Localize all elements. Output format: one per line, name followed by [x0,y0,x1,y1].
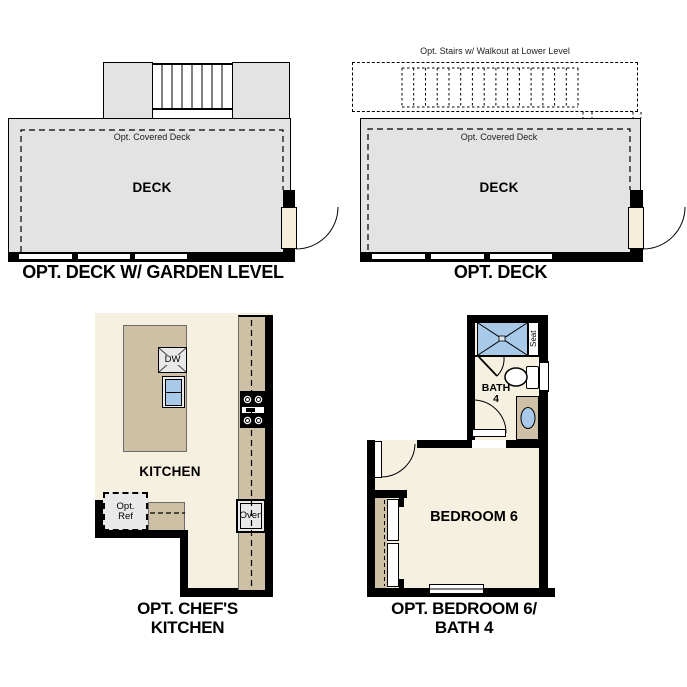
door-swing-arc [643,207,685,249]
plan-caption: OPT. CHEF'SKITCHEN [95,599,280,637]
railing-segment [489,253,553,260]
floor-plan-sheet: Opt. Covered Deck DECK OPT. DECK W/ GARD… [0,0,687,687]
closet-wall [375,490,407,498]
railing-segment [371,253,426,260]
shower-seat-label: Seat [528,322,539,356]
cooktop-control [246,408,255,412]
door-swing-arc [296,207,338,249]
bath-window [539,361,549,392]
wall-segment [180,538,188,589]
covered-deck-label: Opt. Covered Deck [21,131,283,144]
dishwasher-label: DW [158,347,187,373]
toilet-tank [526,366,539,389]
bath-door-leaf [472,429,506,437]
deck-label: DECK [21,180,283,196]
bath-label: BATH4 [468,382,524,406]
stair-landing-right [232,62,290,120]
wall-segment [417,440,472,448]
bedroom-window [429,584,484,594]
shower [477,322,528,356]
sink-basin [165,379,182,393]
deck-label: DECK [368,180,630,196]
closet-interior [375,498,387,588]
wall-segment [630,190,643,208]
railing-segment [430,253,485,260]
counter [148,502,185,531]
plan-caption: OPT. DECK [360,263,641,282]
wall-segment [539,323,548,361]
refrigerator-label: Opt.Ref [103,492,148,531]
sink-basin [165,392,182,406]
wall-segment [95,530,188,538]
closet-jamb [399,579,404,588]
wall-segment [95,500,103,532]
plan-caption: OPT. BEDROOM 6/BATH 4 [364,599,564,637]
optional-stairs-outline [352,62,638,112]
door-leaf [628,207,644,249]
wall-segment [265,315,273,597]
kitchen-label: KITCHEN [110,464,230,480]
railing-segment [18,253,73,260]
plan-caption: OPT. DECK W/ GARDEN LEVEL [5,263,301,282]
counter-run [238,315,265,590]
wall-segment [630,248,643,262]
railing-segment [134,253,188,260]
closet-jamb [399,498,404,507]
door-leaf [281,207,297,249]
railing-segment [77,253,131,260]
wall-segment [283,190,295,208]
bedroom-label: BEDROOM 6 [394,510,554,526]
bedroom-door-leaf [374,441,382,478]
stairs [152,63,233,110]
entry-threshold [379,440,419,448]
wall-segment [467,315,475,440]
covered-deck-label: Opt. Covered Deck [368,131,630,144]
oven-label: Oven [236,499,266,533]
stairs-note: Opt. Stairs w/ Walkout at Lower Level [352,45,638,58]
wall-segment [539,392,548,597]
wall-segment [283,248,295,262]
stair-landing-left [103,62,153,119]
closet-door-panel [387,543,399,587]
